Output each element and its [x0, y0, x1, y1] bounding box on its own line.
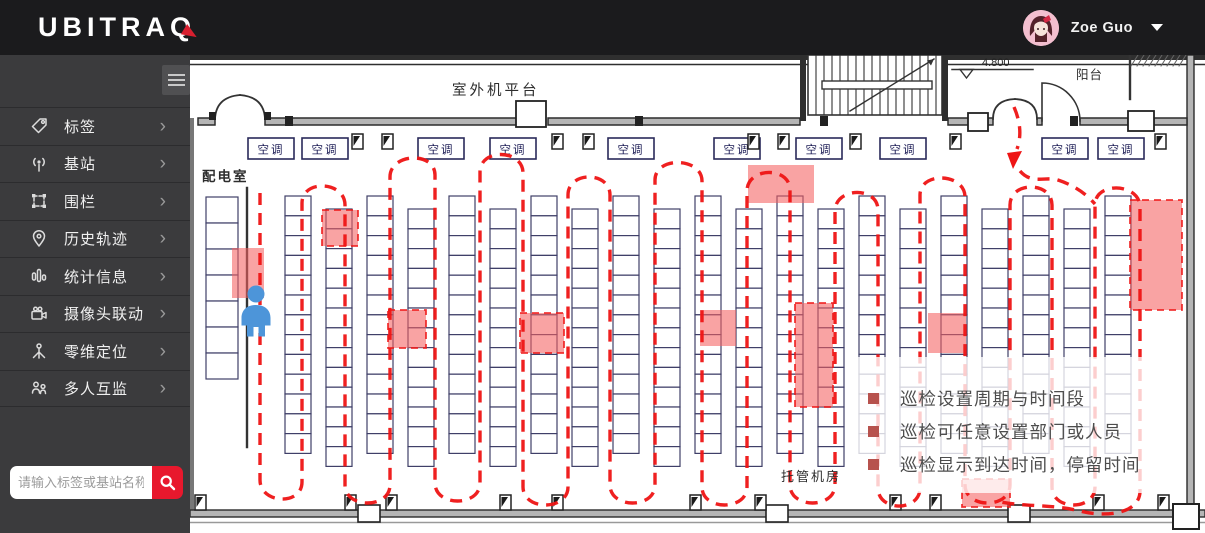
- chevron-right-icon: ›: [160, 154, 166, 173]
- chevron-right-icon: ›: [160, 267, 166, 286]
- annotation-item: 巡检显示到达时间，停留时间: [868, 452, 1141, 477]
- chevron-right-icon: ›: [160, 379, 166, 398]
- rack-column: [285, 196, 311, 453]
- rack-column: [613, 196, 639, 453]
- elevation-marker: 4.800: [952, 57, 1033, 78]
- search-button[interactable]: [152, 466, 183, 499]
- svg-text:空调: 空调: [1108, 143, 1135, 157]
- base-station-icon: [29, 154, 49, 174]
- sidebar: 标签 › 基站 › 围栏 › 历史轨迹 › 统计信息 ›: [0, 55, 190, 533]
- svg-text:空调: 空调: [618, 143, 645, 157]
- hamburger-menu-icon[interactable]: [162, 65, 190, 95]
- bullet-square-icon: [868, 459, 879, 470]
- avatar[interactable]: [1023, 10, 1059, 46]
- video-camera-icon: [29, 304, 49, 324]
- checkpoint: [1130, 200, 1182, 310]
- rack-column: [326, 209, 352, 466]
- search-box: [10, 466, 183, 499]
- svg-text:4.800: 4.800: [982, 57, 1010, 69]
- entry-path: [1014, 107, 1020, 149]
- rack-column: [572, 209, 598, 466]
- staircase: [800, 55, 948, 121]
- checkpoint: [795, 303, 833, 407]
- patrol-annotations: 巡检设置周期与时间段 巡检可任意设置部门或人员 巡检显示到达时间，停留时间: [868, 386, 1141, 485]
- sidebar-item-camera-link[interactable]: 摄像头联动 ›: [0, 295, 190, 333]
- sidebar-item-history-track[interactable]: 历史轨迹 ›: [0, 220, 190, 258]
- svg-text:空调: 空调: [890, 143, 917, 157]
- bar-chart-icon: [29, 266, 49, 286]
- fence-icon: [29, 191, 49, 211]
- label-balcony: 阳台: [1076, 67, 1103, 82]
- chevron-right-icon: ›: [160, 342, 166, 361]
- svg-text:空调: 空调: [724, 143, 751, 157]
- people-icon: [29, 378, 49, 398]
- top-bar: UBITRAQ Zoe Guo: [0, 0, 1205, 55]
- label-outdoor-platform: 室外机平台: [452, 82, 540, 99]
- sidebar-item-statistics[interactable]: 统计信息 ›: [0, 257, 190, 295]
- bullet-square-icon: [868, 426, 879, 437]
- sidebar-item-tags[interactable]: 标签 ›: [0, 107, 190, 145]
- user-name[interactable]: Zoe Guo: [1071, 20, 1133, 36]
- sidebar-item-multi-person-monitor[interactable]: 多人互监 ›: [0, 370, 190, 408]
- app-logo: UBITRAQ: [38, 12, 201, 43]
- svg-text:空调: 空调: [1052, 143, 1079, 157]
- svg-text:空调: 空调: [258, 143, 285, 157]
- sidebar-item-zero-dim-locate[interactable]: 零维定位 ›: [0, 332, 190, 370]
- entry-arrow-icon: [1007, 151, 1022, 169]
- rack-column: [449, 196, 475, 453]
- label-power-room: 配电室: [202, 168, 249, 184]
- logo-text: UBITRAQ: [38, 12, 196, 43]
- chevron-right-icon: ›: [160, 304, 166, 323]
- rack-column: [736, 209, 762, 466]
- svg-text:空调: 空调: [312, 143, 339, 157]
- label-hosting-room: 托管机房: [781, 469, 841, 484]
- checkpoint: [388, 310, 426, 348]
- double-door: [209, 95, 271, 120]
- tag-icon: [29, 116, 49, 136]
- chevron-down-icon[interactable]: [1151, 24, 1163, 31]
- checkpoint: [700, 310, 736, 346]
- floorplan-canvas[interactable]: 4.800 空调空调空调空调空调空调空调空调空调空调 室外机平台 配电室 托管机…: [190, 55, 1205, 533]
- search-input[interactable]: [10, 466, 152, 499]
- tripod-node-icon: [29, 341, 49, 361]
- balcony-door: [1042, 83, 1080, 121]
- map-pin-icon: [29, 229, 49, 249]
- checkpoint: [928, 313, 966, 353]
- svg-text:空调: 空调: [428, 143, 455, 157]
- checkpoint: [322, 210, 358, 246]
- user-menu[interactable]: Zoe Guo: [1023, 0, 1163, 55]
- checkpoint: [520, 313, 564, 353]
- sidebar-menu: 标签 › 基站 › 围栏 › 历史轨迹 › 统计信息 ›: [0, 107, 190, 407]
- svg-text:空调: 空调: [806, 143, 833, 157]
- chevron-right-icon: ›: [160, 192, 166, 211]
- chevron-right-icon: ›: [160, 229, 166, 248]
- sidebar-item-stations[interactable]: 基站 ›: [0, 145, 190, 183]
- annotation-item: 巡检设置周期与时间段: [868, 386, 1141, 411]
- annotation-item: 巡检可任意设置部门或人员: [868, 419, 1141, 444]
- search-icon: [159, 474, 176, 491]
- bullet-square-icon: [868, 393, 879, 404]
- checkpoint: [748, 165, 814, 203]
- rack-column: [654, 209, 680, 466]
- chevron-right-icon: ›: [160, 117, 166, 136]
- sidebar-item-fence[interactable]: 围栏 ›: [0, 182, 190, 220]
- rack-column: [490, 209, 516, 466]
